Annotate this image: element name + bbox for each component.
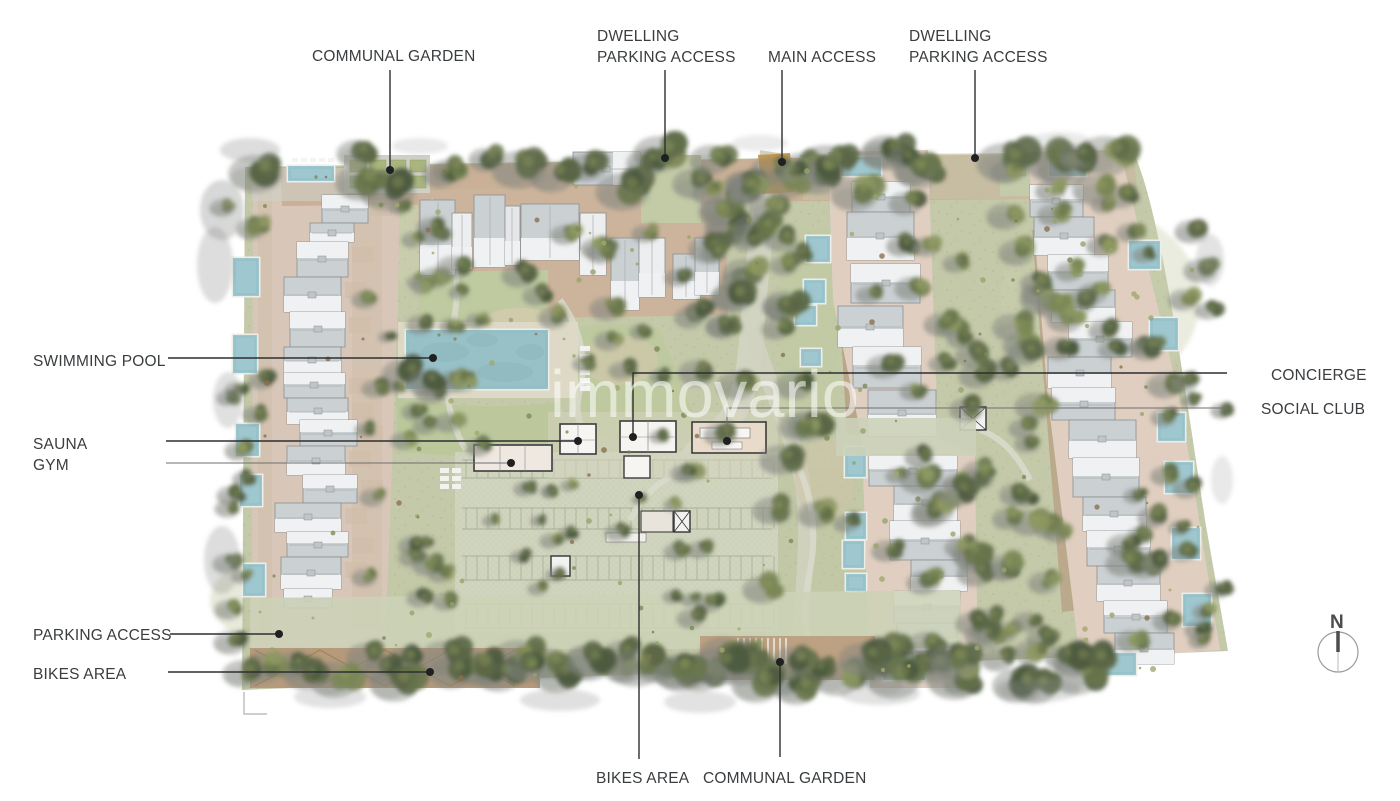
svg-text:PARKING ACCESS: PARKING ACCESS [909, 49, 1048, 66]
svg-text:SWIMMING POOL: SWIMMING POOL [33, 353, 166, 370]
svg-text:COMMUNAL GARDEN: COMMUNAL GARDEN [703, 770, 866, 787]
svg-text:N: N [1330, 612, 1344, 633]
svg-text:COMMUNAL GARDEN: COMMUNAL GARDEN [312, 48, 475, 65]
svg-text:DWELLING: DWELLING [909, 28, 992, 45]
svg-text:DWELLING: DWELLING [597, 28, 680, 45]
svg-text:CONCIERGE: CONCIERGE [1271, 367, 1367, 384]
svg-text:SOCIAL CLUB: SOCIAL CLUB [1261, 401, 1365, 418]
svg-text:MAIN ACCESS: MAIN ACCESS [768, 49, 876, 66]
svg-text:PARKING ACCESS: PARKING ACCESS [597, 49, 736, 66]
svg-text:PARKING ACCESS: PARKING ACCESS [33, 627, 172, 644]
svg-text:immovario: immovario [550, 357, 859, 432]
svg-text:BIKES AREA: BIKES AREA [596, 770, 690, 787]
svg-text:SAUNA: SAUNA [33, 436, 88, 453]
svg-text:GYM: GYM [33, 457, 69, 474]
svg-text:BIKES AREA: BIKES AREA [33, 666, 127, 683]
